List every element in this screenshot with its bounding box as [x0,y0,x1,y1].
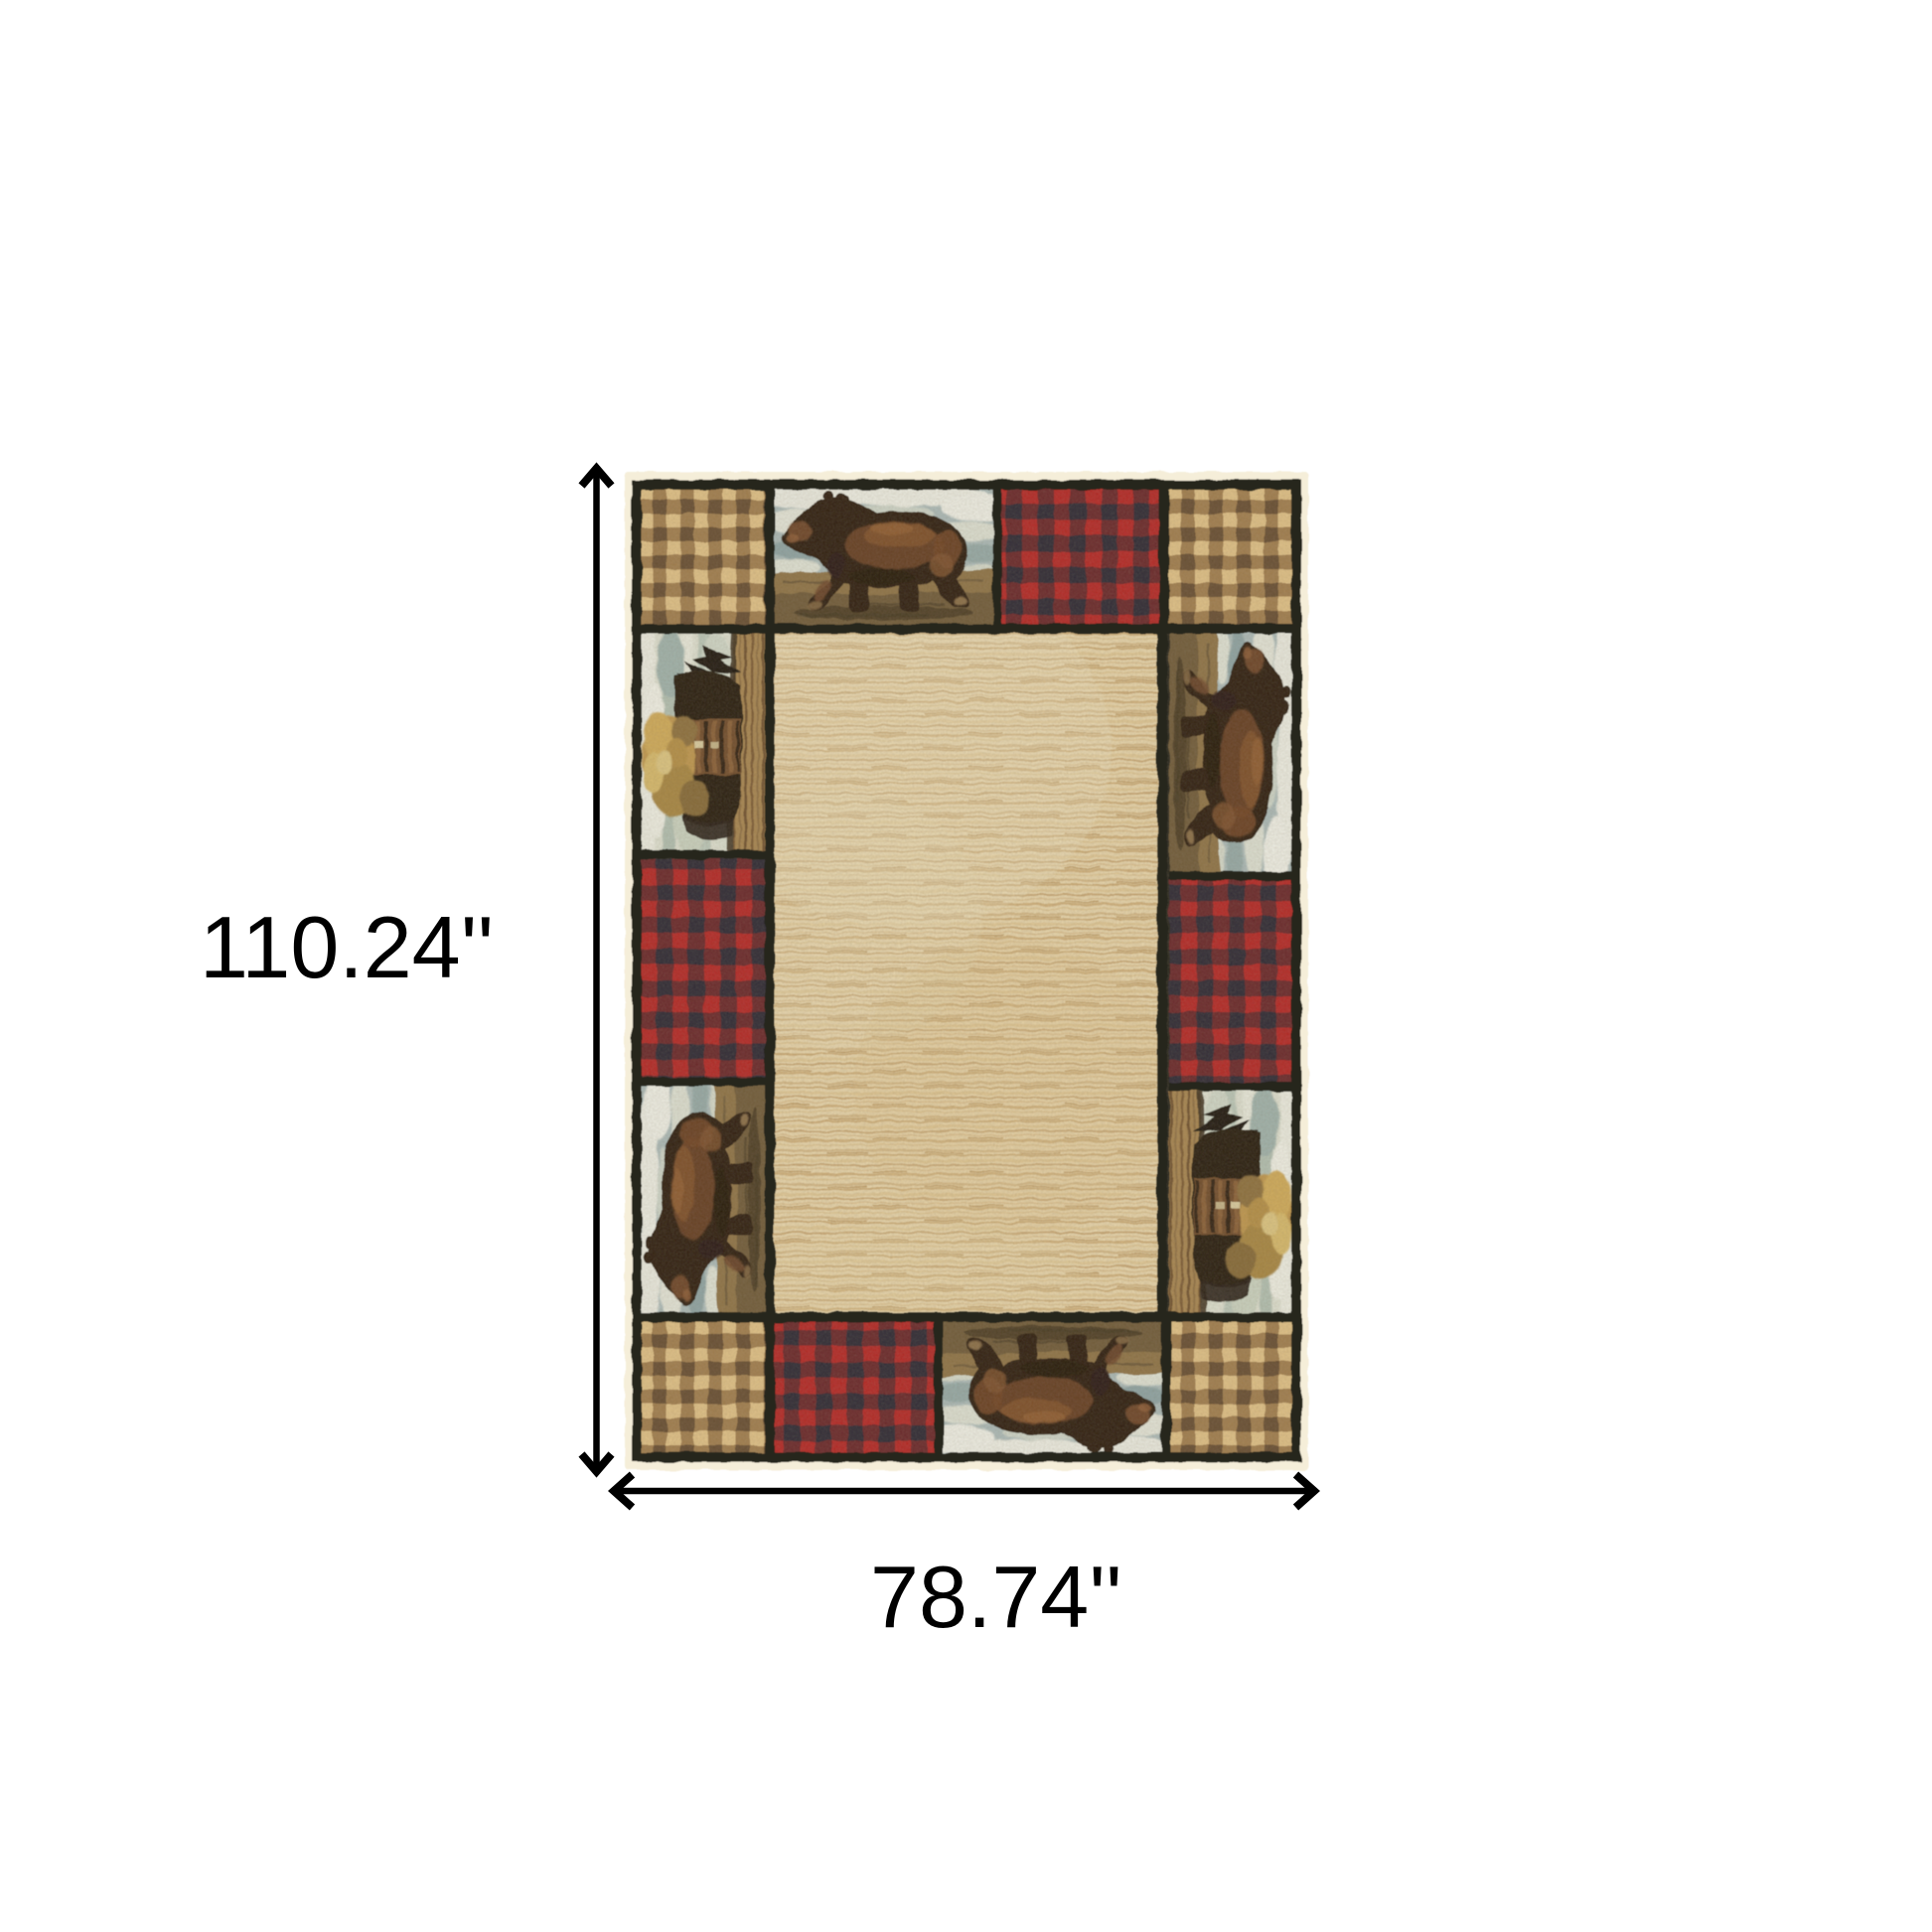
svg-text:110.24'': 110.24'' [200,898,494,996]
svg-text:78.74'': 78.74'' [870,1548,1122,1646]
